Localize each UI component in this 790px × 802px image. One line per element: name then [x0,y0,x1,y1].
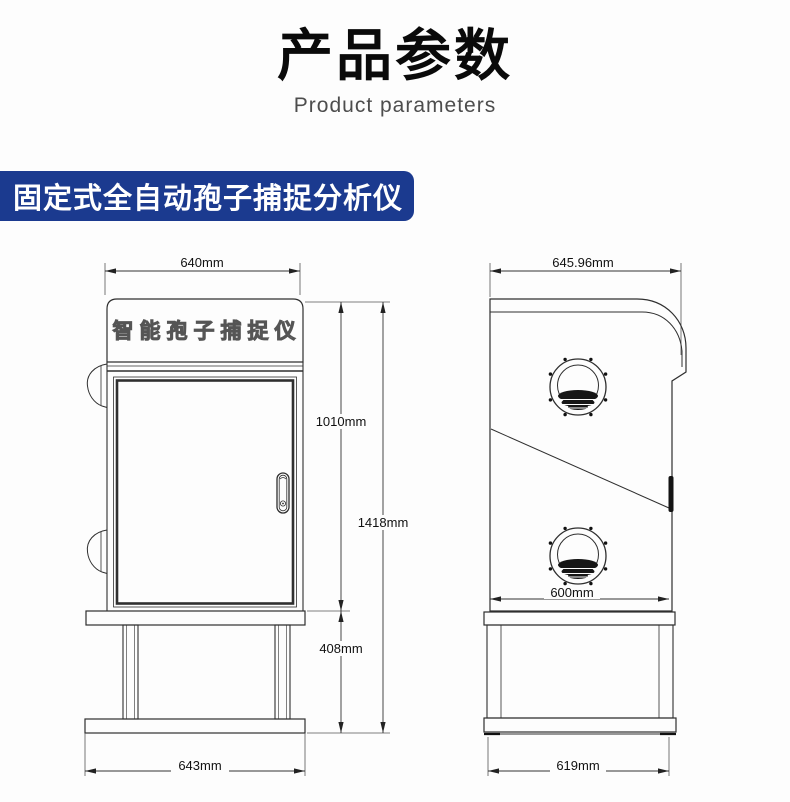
dim-label: 645.96mm [552,255,613,270]
dim-label: 408mm [319,641,362,656]
cabinet-sides [107,362,303,611]
hinge-bar [669,476,674,512]
dim-label: 600mm [550,585,593,600]
dim-label: 1010mm [316,414,367,429]
stand-top-plate [484,612,675,625]
door-panel [117,381,293,604]
dim-front-door-height: 1010mm [316,302,367,611]
section-banner: 固定式全自动孢子捕捉分析仪 [0,171,414,221]
door-handle-icon [277,473,289,513]
door-outer-line [114,377,297,607]
hood-inner-line [490,312,682,367]
page-subtitle: Product parameters [0,94,790,118]
device-nameplate-label: 智能孢子捕捉仪 [113,319,302,343]
dim-label: 619mm [556,758,599,773]
fan-louver-detail [558,559,598,579]
stand-base-plate [484,718,676,732]
stand-base-plate [85,719,305,733]
section-banner-label: 固定式全自动孢子捕捉分析仪 [13,175,403,217]
page-title: 产品参数 [0,20,790,92]
dim-side-top-width: 645.96mm [490,255,681,355]
page-header: 产品参数 Product parameters [0,20,790,118]
fan-flange-bottom-icon [549,527,608,586]
dim-label: 643mm [178,758,221,773]
side-bracket-bottom [87,530,107,574]
dim-side-body-width: 600mm [490,585,669,600]
dim-label: 1418mm [358,515,409,530]
dim-front-total-height: 1418mm [358,302,409,733]
side-bracket-top [87,364,107,408]
technical-drawings: 640mm 智能孢子捕捉仪 [0,245,790,802]
dim-front-stand-height: 408mm [319,611,363,733]
dim-label: 640mm [180,255,223,270]
product-parameters-page: 产品参数 Product parameters 固定式全自动孢子捕捉分析仪 64… [0,0,790,802]
dim-front-top-width: 640mm [105,255,300,295]
front-view-drawing: 640mm 智能孢子捕捉仪 [85,255,408,776]
dim-front-base-width: 643mm [85,733,305,776]
side-view-drawing: 645.96mm [484,255,686,776]
diagonal-panel-edge [491,429,669,508]
fan-flange-top-icon [549,358,608,417]
stand-top-plate [86,611,305,625]
stand-legs [123,625,290,719]
drawings-svg: 640mm 智能孢子捕捉仪 [0,245,790,802]
stand-frame [487,625,673,718]
dim-side-base-width: 619mm [488,737,669,776]
fan-louver-detail [558,390,598,410]
